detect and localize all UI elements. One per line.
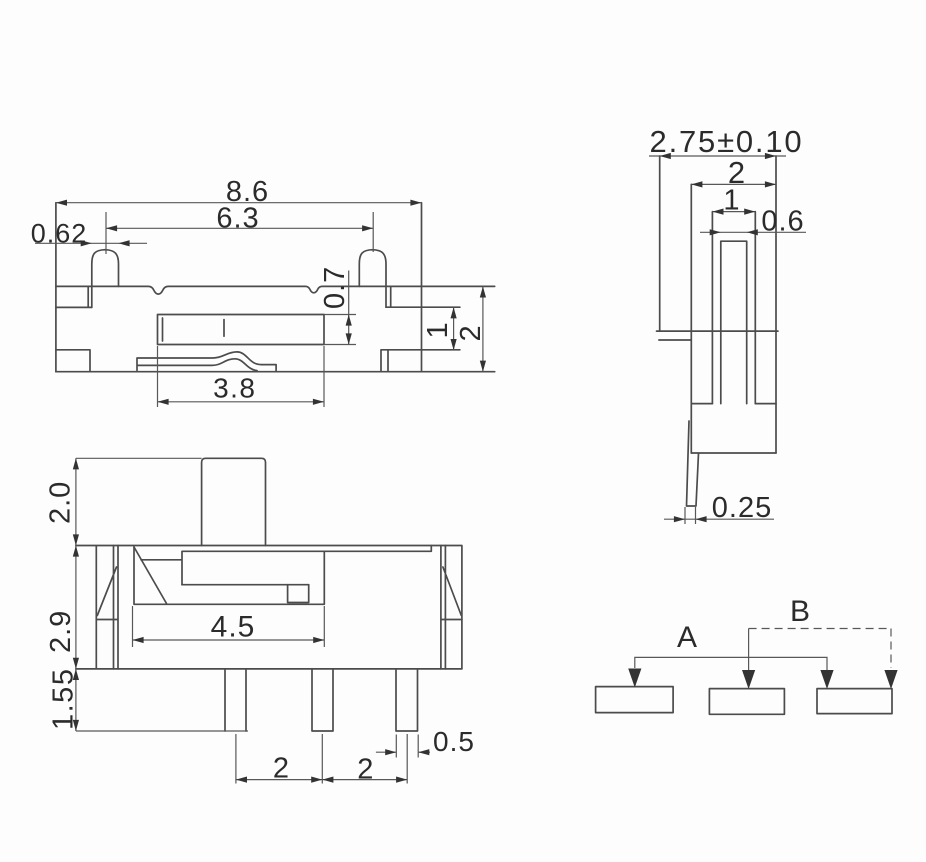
svg-text:0.25: 0.25	[712, 492, 772, 524]
svg-text:2: 2	[455, 325, 487, 341]
svg-text:2.9: 2.9	[45, 610, 77, 653]
svg-text:0.7: 0.7	[319, 266, 351, 309]
svg-text:0.5: 0.5	[433, 726, 475, 757]
svg-text:2: 2	[273, 753, 289, 785]
svg-text:2.0: 2.0	[45, 481, 77, 524]
svg-text:1: 1	[723, 185, 739, 217]
svg-text:0.6: 0.6	[761, 206, 804, 238]
svg-text:1.55: 1.55	[48, 668, 80, 730]
svg-text:0.62: 0.62	[31, 219, 88, 249]
svg-text:B: B	[790, 595, 810, 628]
svg-text:3.8: 3.8	[213, 373, 256, 404]
svg-text:4.5: 4.5	[211, 611, 256, 644]
svg-text:2.75±0.10: 2.75±0.10	[650, 124, 804, 159]
svg-text:A: A	[677, 621, 697, 654]
svg-text:1: 1	[422, 322, 454, 338]
svg-text:2: 2	[357, 754, 373, 786]
svg-text:6.3: 6.3	[216, 203, 259, 235]
